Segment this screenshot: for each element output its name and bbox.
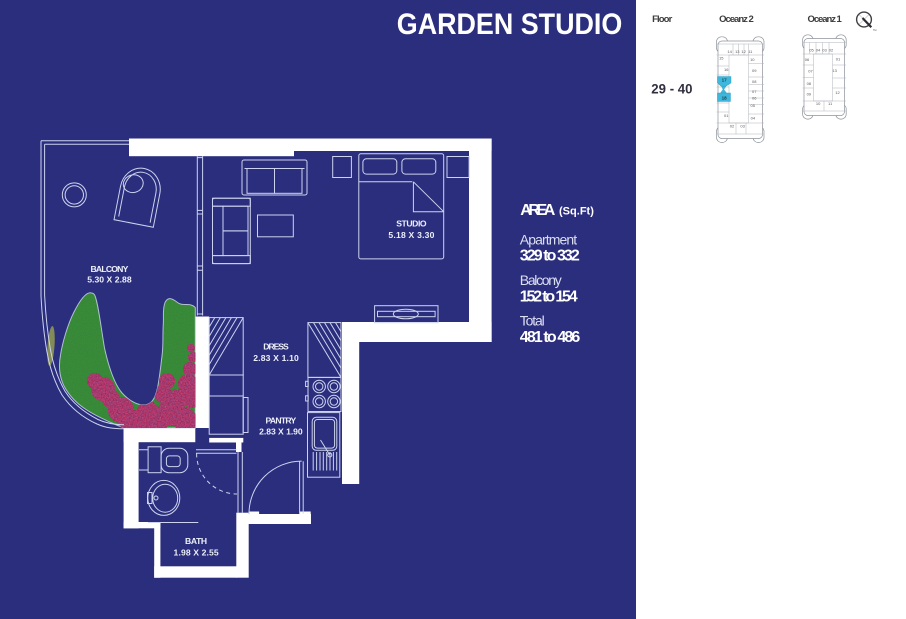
svg-text:01: 01 (724, 113, 729, 118)
svg-text:18: 18 (722, 96, 728, 101)
svg-text:06: 06 (752, 95, 757, 100)
svg-text:03: 03 (740, 123, 745, 128)
svg-text:10: 10 (750, 57, 755, 62)
svg-text:12: 12 (835, 90, 840, 95)
svg-text:(Sq.Ft): (Sq.Ft) (559, 206, 594, 218)
svg-text:05: 05 (750, 103, 755, 108)
svg-text:08: 08 (752, 79, 757, 84)
svg-text:17: 17 (722, 78, 728, 83)
svg-text:BALCONY: BALCONY (91, 264, 129, 274)
svg-text:05: 05 (809, 48, 814, 53)
svg-text:03: 03 (822, 48, 827, 53)
svg-text:5.18 X 3.30: 5.18 X 3.30 (388, 230, 434, 240)
svg-text:06: 06 (805, 57, 810, 62)
svg-text:PANTRY: PANTRY (266, 415, 297, 425)
svg-text:10: 10 (816, 101, 821, 106)
svg-text:14: 14 (727, 49, 732, 54)
svg-text:152 to 154: 152 to 154 (520, 288, 578, 305)
svg-text:329 to 332: 329 to 332 (520, 248, 580, 265)
svg-text:15: 15 (719, 56, 724, 61)
svg-text:2.83 X 1.10: 2.83 X 1.10 (253, 353, 299, 363)
svg-text:GARDEN STUDIO: GARDEN STUDIO (397, 8, 623, 41)
svg-text:5.30 X 2.88: 5.30 X 2.88 (87, 275, 132, 285)
svg-text:02: 02 (730, 123, 735, 128)
svg-text:Oceanz 1: Oceanz 1 (808, 14, 843, 25)
svg-text:Apartment: Apartment (520, 231, 578, 247)
svg-text:STUDIO: STUDIO (396, 219, 427, 229)
svg-text:DRESS: DRESS (263, 342, 289, 352)
svg-text:12: 12 (741, 49, 746, 54)
svg-text:09: 09 (807, 92, 812, 97)
svg-text:AREA: AREA (520, 202, 555, 219)
svg-text:Total: Total (520, 312, 545, 328)
svg-text:13: 13 (735, 49, 740, 54)
svg-text:Balcony: Balcony (520, 272, 562, 288)
svg-text:09: 09 (752, 68, 757, 73)
svg-text:1.98 X 2.55: 1.98 X 2.55 (174, 547, 219, 557)
svg-text:Floor: Floor (652, 14, 672, 25)
svg-text:04: 04 (816, 48, 821, 53)
svg-text:07: 07 (808, 69, 813, 74)
svg-text:2.83 X 1.90: 2.83 X 1.90 (259, 427, 303, 437)
svg-text:02: 02 (829, 48, 834, 53)
svg-text:07: 07 (752, 89, 757, 94)
svg-text:16: 16 (724, 67, 729, 72)
svg-text:481 to 486: 481 to 486 (520, 329, 581, 346)
svg-text:01: 01 (836, 57, 841, 62)
svg-text:04: 04 (751, 116, 756, 121)
svg-text:13: 13 (832, 68, 837, 73)
svg-text:29 - 40: 29 - 40 (651, 82, 692, 97)
svg-text:08: 08 (807, 81, 812, 86)
svg-text:BATH: BATH (185, 536, 207, 546)
svg-text:Oceanz 2: Oceanz 2 (719, 14, 754, 25)
svg-text:™: ™ (873, 28, 877, 33)
